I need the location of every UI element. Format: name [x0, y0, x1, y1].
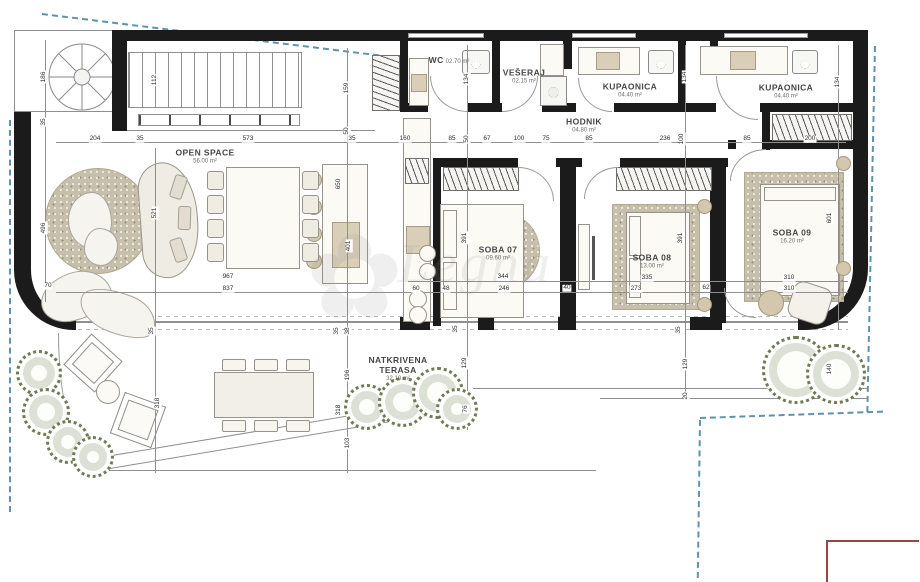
- round-furniture: [409, 306, 427, 324]
- dimension-label: 85: [584, 136, 593, 143]
- wall-corridor-2: [468, 103, 502, 112]
- boundary-line-bottom-right: [697, 420, 701, 578]
- door-kupaonica2: [716, 76, 758, 120]
- dimension-label: 100: [679, 133, 686, 146]
- dimension-label: 134: [682, 71, 689, 84]
- kupaonica1-toilet: [648, 50, 674, 74]
- room-area: 04.80 m²: [566, 127, 602, 134]
- dimension-label: 335: [641, 275, 654, 282]
- dimension-label: 521: [152, 207, 159, 220]
- wall-bottom-4: [690, 317, 722, 330]
- stair-floor-line: [113, 130, 375, 131]
- dimension-label: 344: [497, 274, 510, 281]
- entry-closet: [372, 55, 400, 111]
- dimension-label: 318: [155, 397, 162, 410]
- wall-bedrooms-top-1: [433, 158, 518, 167]
- wall-bedrooms-top-3: [620, 158, 728, 167]
- room-area: 56.00 m²: [175, 158, 234, 165]
- room-area: 09.60 m²: [479, 255, 518, 262]
- pillow-soba09: [764, 187, 836, 201]
- wall-bedrooms-top-2: [556, 158, 582, 167]
- dimension-label: 967: [222, 274, 235, 281]
- outdoor-chair: [286, 359, 310, 371]
- dishwasher: [405, 158, 429, 184]
- kupaonica2-sink: [730, 51, 756, 70]
- dimension-label: 100: [513, 136, 526, 143]
- room-label-kupaonica-2: KUPAONICA04.40 m²: [759, 84, 813, 101]
- dimension-label: 85: [742, 136, 751, 143]
- dimension-label: 50: [344, 126, 351, 135]
- room-area: 32.10 m²: [358, 375, 438, 382]
- dining-chair: [207, 243, 224, 262]
- dimension-label: 60: [411, 286, 420, 293]
- room-name: SOBA 09: [773, 229, 812, 239]
- room-label-hodnik: HODNIK04.80 m²: [566, 118, 602, 135]
- dimension-label: 246: [498, 286, 511, 293]
- terrace-bottom-edge: [96, 470, 596, 471]
- dining-chair: [207, 171, 224, 190]
- window-top-3: [724, 33, 808, 38]
- dim-line-v155: [155, 148, 156, 473]
- room-name: SOBA 08: [633, 254, 672, 264]
- dimension-label: 129: [683, 358, 690, 371]
- round-furniture: [836, 156, 851, 171]
- tv-screen: [592, 236, 595, 280]
- bush: [72, 436, 114, 478]
- dimension-label: 35: [334, 326, 341, 335]
- glass-wall: [70, 321, 848, 323]
- dimension-label: 204: [89, 136, 102, 143]
- kupaonica1-sink: [596, 52, 620, 70]
- room-name: NATKRIVENA TERASA: [358, 356, 438, 376]
- outdoor-chair: [222, 420, 246, 432]
- door-soba08: [584, 167, 618, 199]
- outdoor-chair: [286, 420, 310, 432]
- dimension-label: 103: [345, 437, 352, 450]
- dimension-label: 391: [462, 232, 469, 245]
- dimension-label: 35: [135, 136, 144, 143]
- room-area: 04.40 m²: [759, 93, 813, 100]
- window-top-1: [408, 33, 484, 38]
- watermark-flower-icon: ✿: [305, 208, 404, 347]
- room-label-wc: WC02.70 m²: [429, 56, 470, 66]
- dimension-label: 236: [659, 136, 672, 143]
- dimension-label: 573: [242, 136, 255, 143]
- dimension-label: 50: [464, 134, 471, 143]
- dimension-label: 140: [827, 363, 834, 376]
- room-label-soba-07: SOBA 0709.60 m²: [479, 246, 518, 263]
- room-label-soba-08: SOBA 0813.00 m²: [633, 254, 672, 271]
- dimension-label: 837: [222, 286, 235, 293]
- outdoor-chair: [254, 420, 278, 432]
- spiral-staircase: [46, 41, 118, 113]
- sofa: [136, 160, 202, 280]
- room-label-open-space: OPEN SPACE56.00 m²: [175, 149, 234, 166]
- dimension-label: 35: [347, 136, 356, 143]
- round-furniture: [697, 297, 712, 312]
- dimension-label: 38: [345, 326, 352, 335]
- dimension-label: 129: [462, 357, 469, 370]
- sofa-cushion-2: [178, 206, 192, 230]
- dimension-label: 70: [43, 283, 52, 290]
- room-area: 02.70 m²: [446, 59, 470, 66]
- dimension-label: 35: [676, 325, 683, 334]
- dimension-label: 310: [783, 275, 796, 282]
- wall-stair-divider: [112, 41, 127, 131]
- wardrobe-soba07: [443, 167, 519, 191]
- dimension-label: 496: [41, 222, 48, 235]
- dimension-label: 48: [441, 286, 450, 293]
- dim-line-v685: [685, 45, 686, 400]
- dimension-label: 35: [149, 326, 156, 335]
- kupaonica2-toilet: [792, 50, 818, 74]
- round-furniture: [96, 380, 120, 404]
- dining-chair: [207, 195, 224, 214]
- dimension-label: 134: [464, 73, 471, 86]
- dimension-label: 159: [344, 82, 351, 95]
- round-furniture: [758, 290, 784, 316]
- wall-v-veseraj-right: [563, 41, 572, 69]
- wall-right: [853, 41, 868, 254]
- dimension-label: 401: [346, 240, 353, 253]
- wall-soba08-09-divider: [710, 167, 726, 323]
- dining-chair: [302, 171, 319, 190]
- room-name: HODNIK: [566, 118, 602, 128]
- outdoor-chair: [254, 359, 278, 371]
- round-furniture: [836, 261, 851, 276]
- boundary-line-left: [9, 120, 11, 512]
- wall-soba07-08-divider: [560, 167, 576, 323]
- dimension-label: 391: [678, 232, 685, 245]
- floor-plan: ✿ Legna: [0, 0, 920, 582]
- room-label-soba-09: SOBA 0916.20 m²: [773, 229, 812, 246]
- dimension-label: 112: [152, 74, 159, 86]
- dimension-label: 35: [41, 117, 48, 126]
- wc-sink: [411, 74, 427, 92]
- dimension-label: 318: [336, 404, 343, 417]
- wall-bottom-3: [558, 317, 576, 330]
- dimension-label: 650: [336, 178, 343, 191]
- room-area: 02.15 m²: [503, 78, 545, 85]
- dimension-label: 85: [447, 136, 456, 143]
- wall-bottom-2: [478, 317, 494, 330]
- window-top-2: [572, 33, 636, 38]
- dimension-label: 20: [683, 391, 690, 400]
- stair-railing: [138, 114, 300, 126]
- room-name: KUPAONICA: [603, 83, 657, 93]
- door-soba07: [518, 167, 554, 201]
- room-area: 16.20 m²: [773, 238, 812, 245]
- dimension-label: 62: [701, 285, 710, 292]
- bush: [806, 344, 866, 404]
- watermark-text: Legna: [398, 232, 553, 296]
- dimension-label: 76: [463, 404, 470, 413]
- dimension-label: 134: [835, 76, 842, 89]
- dimension-label: 75: [541, 136, 550, 143]
- bush: [436, 388, 478, 430]
- room-area: 13.00 m²: [633, 263, 672, 270]
- dimension-label: 67: [482, 136, 491, 143]
- red-parcel-outline: [826, 540, 919, 582]
- dimension-label: 196: [345, 369, 352, 382]
- dimension-label: 310: [783, 286, 796, 293]
- dimension-label: 273: [630, 286, 643, 293]
- room-label-kupaonica-1: KUPAONICA04.40 m²: [603, 83, 657, 100]
- room-name: WC: [429, 56, 444, 66]
- room-name: VEŠERAJ: [503, 69, 545, 79]
- dining-chair: [207, 219, 224, 238]
- room-label-terasa: NATKRIVENA TERASA32.10 m²: [358, 356, 438, 382]
- wall-v-wc-right: [492, 41, 500, 111]
- dimension-label: 35: [453, 324, 460, 333]
- room-name: KUPAONICA: [759, 84, 813, 94]
- dimension-label: 40: [562, 285, 571, 292]
- room-name: OPEN SPACE: [175, 149, 234, 159]
- pillow-soba08-1: [629, 216, 641, 256]
- room-area: 04.40 m²: [603, 92, 657, 99]
- wall-corridor-5: [760, 103, 853, 112]
- dining-table: [226, 167, 300, 269]
- outdoor-chair: [222, 359, 246, 371]
- dimension-label: 601: [827, 212, 834, 225]
- wall-corridor-4: [614, 103, 716, 112]
- wall-v-closet: [400, 41, 408, 111]
- outdoor-dining-table: [214, 372, 314, 418]
- dimension-label: 186: [41, 71, 48, 84]
- dimension-label: 200: [804, 136, 817, 143]
- round-furniture: [697, 199, 712, 214]
- boundary-line-bottom-step: [700, 411, 883, 419]
- wardrobe-soba08: [616, 167, 712, 191]
- room-label-veseraj: VEŠERAJ02.15 m²: [503, 69, 545, 86]
- room-name: SOBA 07: [479, 246, 518, 256]
- dimension-label: 160: [399, 136, 412, 143]
